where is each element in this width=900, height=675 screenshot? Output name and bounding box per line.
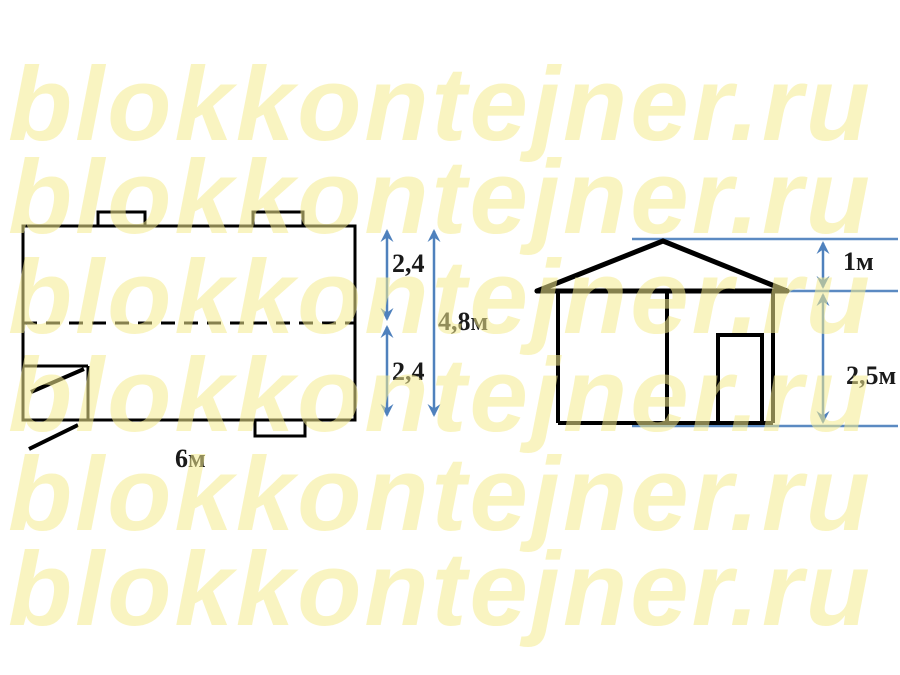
drawing-canvas: 2,4 2,4 4,8м 6м 1м 2,5м blokkontejner.ru… <box>0 0 900 675</box>
dim-label-lower-height: 2,4 <box>392 359 425 385</box>
dim-label-roof-height: 1м <box>843 249 874 275</box>
dimension-labels: 2,4 2,4 4,8м 6м 1м 2,5м <box>0 0 900 675</box>
dim-label-wall-height: 2,5м <box>846 363 896 389</box>
dim-label-upper-height: 2,4 <box>392 251 425 277</box>
dim-label-width: 6м <box>175 446 206 472</box>
dim-label-total-height: 4,8м <box>438 309 488 335</box>
